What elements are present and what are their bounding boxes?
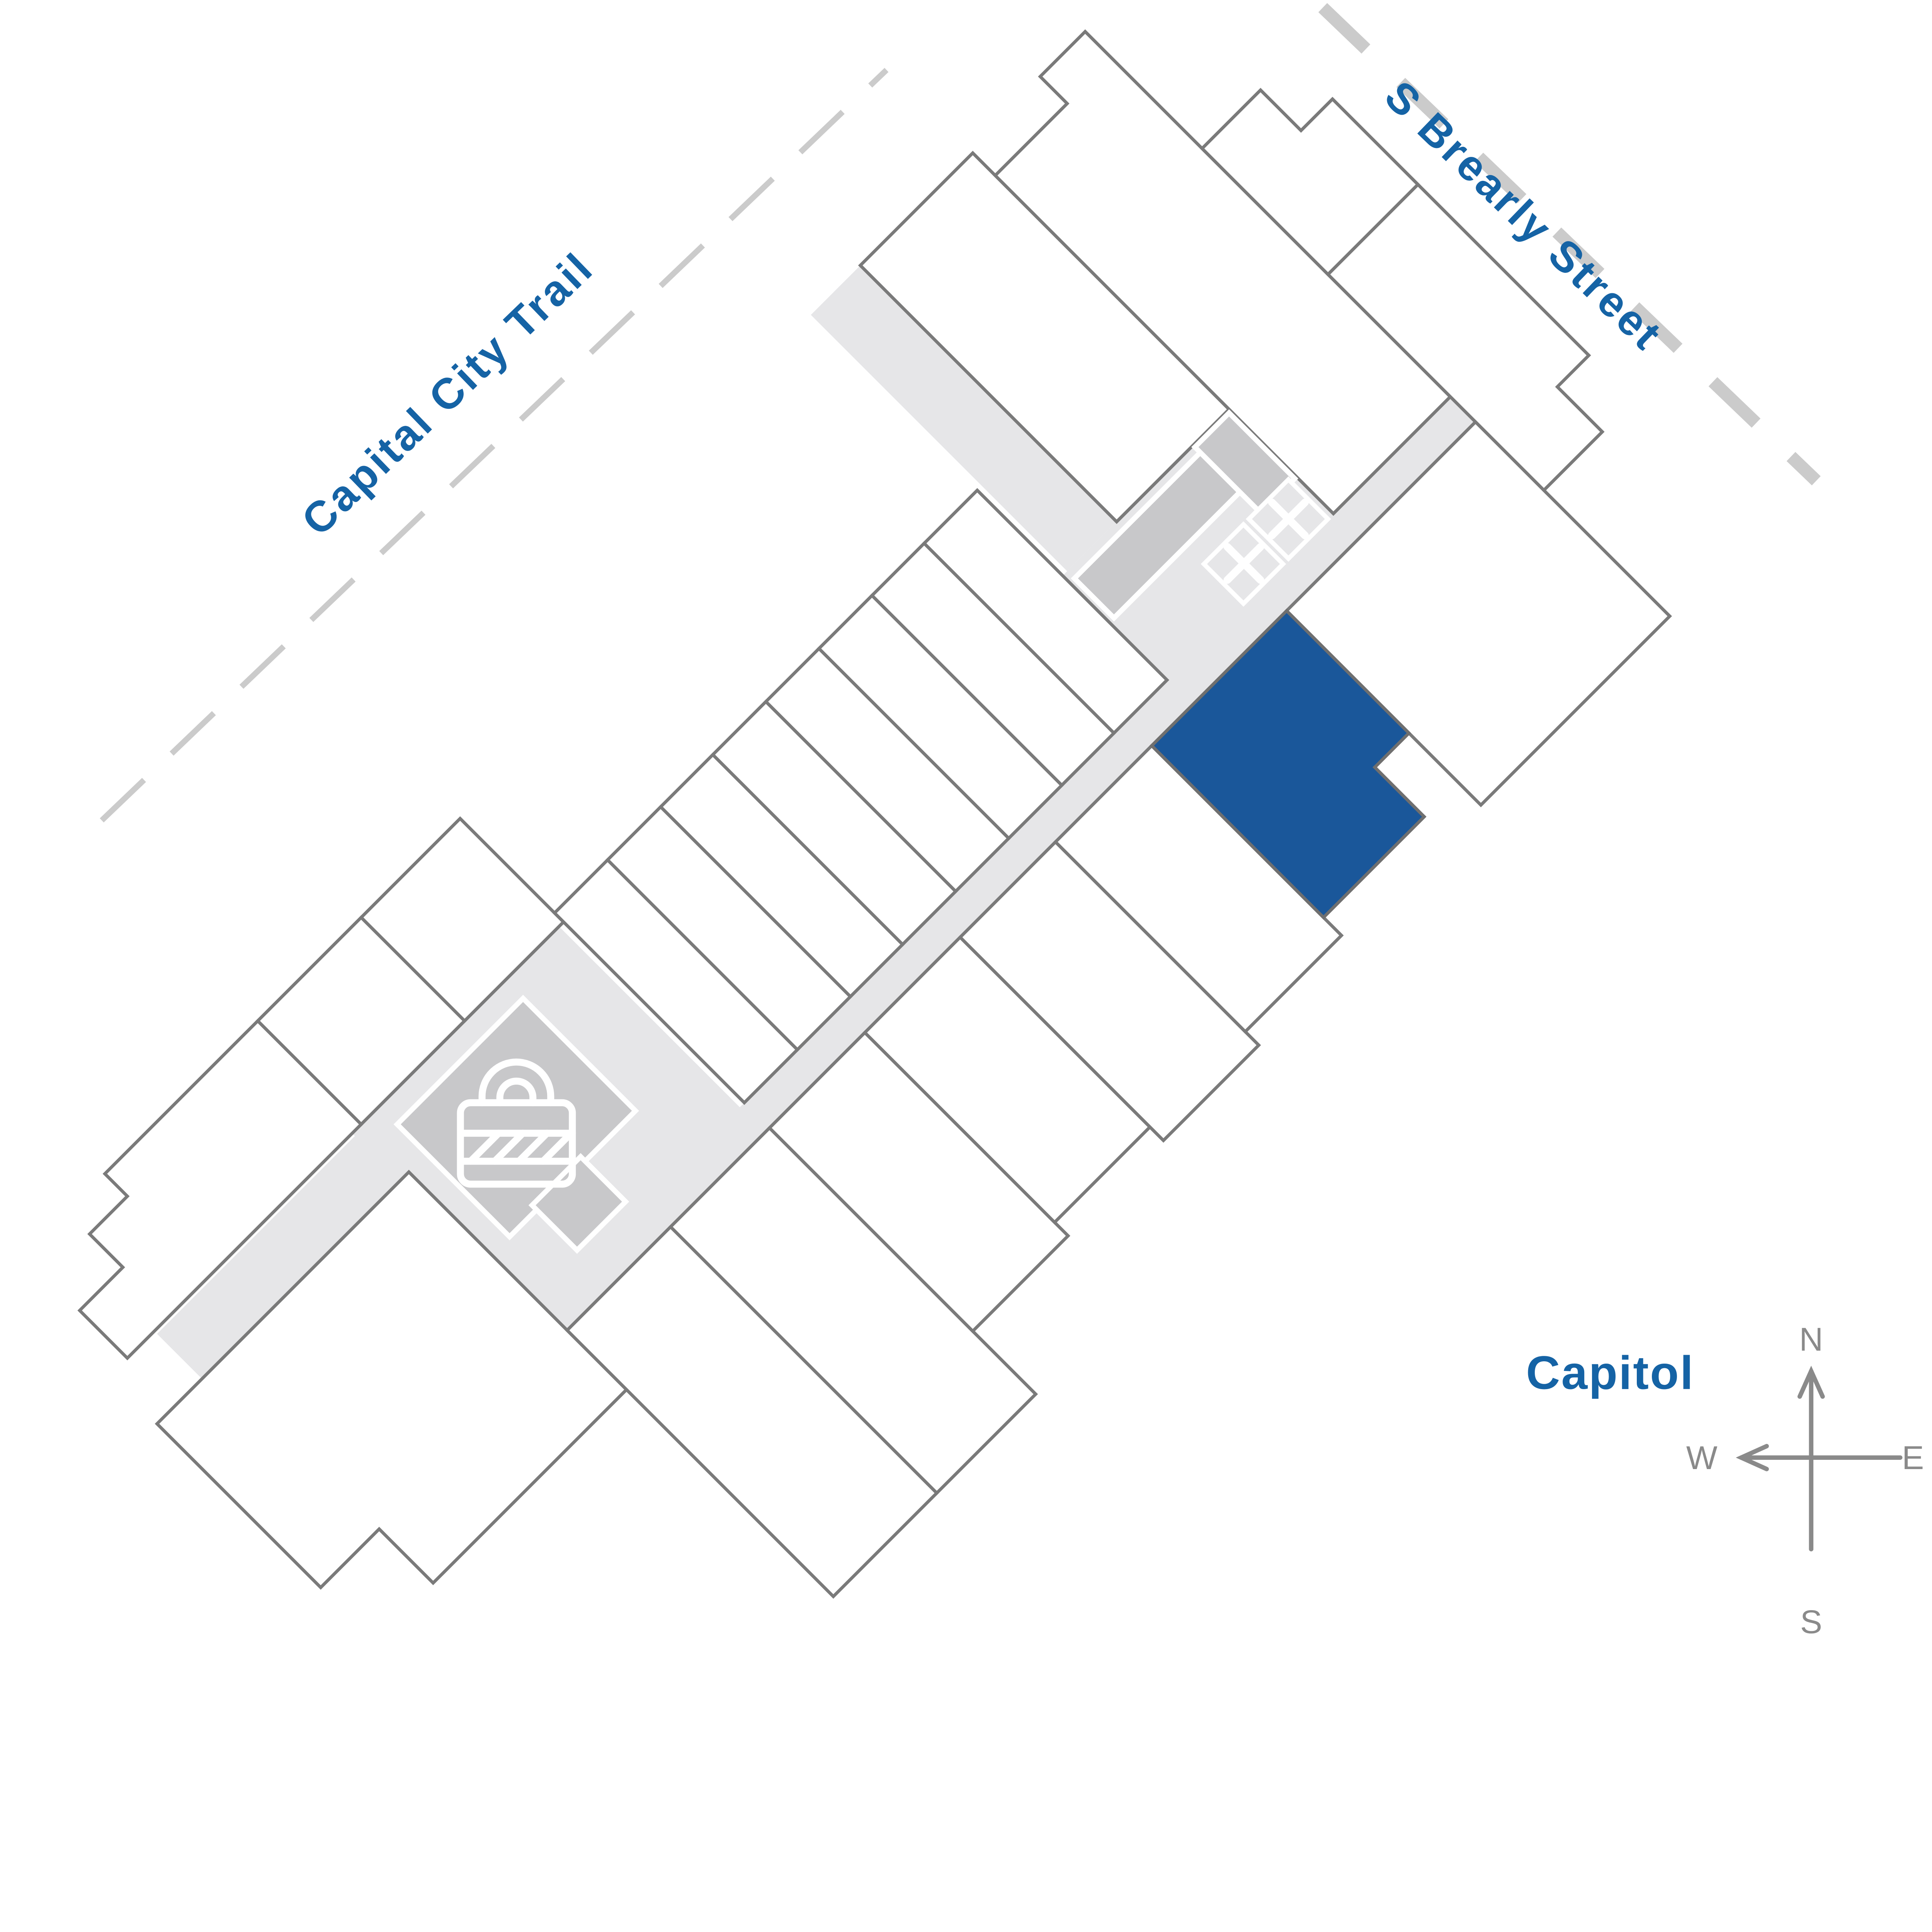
compass-west-label: W xyxy=(1686,1440,1718,1476)
capitol-label: Capitol xyxy=(1526,1346,1694,1399)
compass: N S W E xyxy=(1686,1321,1924,1641)
compass-east-label: E xyxy=(1902,1440,1924,1476)
compass-north-label: N xyxy=(1799,1321,1823,1358)
compass-south-label: S xyxy=(1800,1604,1822,1640)
site-plan-map: Capital City Trail S Brearly Street Capi… xyxy=(0,0,1932,1653)
capital-city-trail-label: Capital City Trail xyxy=(293,243,603,544)
